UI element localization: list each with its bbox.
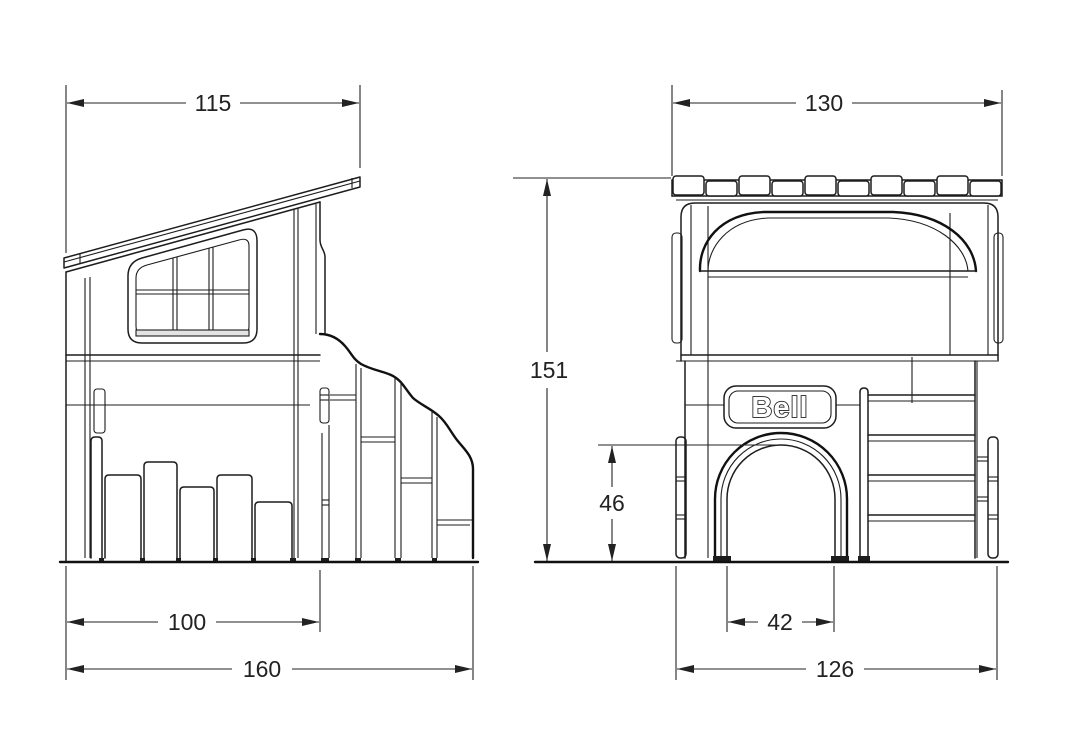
dimension-label-46: 46: [599, 490, 625, 516]
skyline-bars: [91, 437, 292, 558]
dimension-label-42: 42: [767, 609, 793, 635]
side-window: [128, 229, 257, 343]
side-view: 115: [60, 85, 478, 682]
dimension-label-100: 100: [168, 609, 206, 635]
roof-crenellation: [672, 176, 1002, 200]
technical-drawing: 115: [0, 0, 1080, 733]
corner-tab-right: [988, 437, 998, 558]
front-view: 130 151: [513, 85, 1008, 682]
dimension-door-height: 46: [598, 445, 780, 561]
dimension-label-151: 151: [530, 357, 568, 383]
front-plate-edge: [320, 388, 329, 423]
drawing-canvas: 115: [0, 0, 1080, 733]
dimension-label-130: 130: [805, 90, 843, 116]
dimension-roof-width-front: 130: [672, 85, 1002, 176]
dimension-body-width-side: 100: [66, 566, 320, 680]
dimension-label-126: 126: [816, 656, 854, 682]
dimension-overall-height: 151: [513, 178, 671, 561]
dimension-label-115: 115: [195, 90, 232, 116]
door-arch: [713, 433, 849, 562]
rear-plate-edge: [94, 389, 105, 433]
dimension-door-width: 42: [727, 566, 834, 635]
dome-arch: [700, 212, 976, 277]
lower-wall-front: [676, 357, 998, 558]
dimension-overall-width-side: 160: [67, 566, 473, 682]
dimension-label-160: 160: [243, 656, 281, 682]
bell-logo-plate: Bell: [724, 386, 836, 428]
loft-front: [672, 203, 1003, 558]
stairs-side-profile: [320, 334, 473, 558]
bell-logo-text: Bell: [751, 392, 808, 424]
ladder-front: [858, 388, 975, 562]
dimension-overall-width-front: 126: [676, 566, 997, 682]
